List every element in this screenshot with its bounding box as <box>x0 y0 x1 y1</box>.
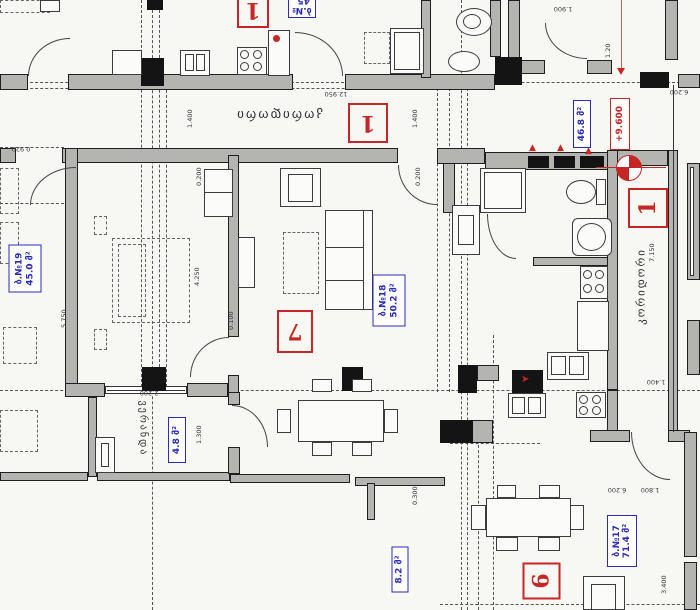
stove-burner <box>595 270 604 279</box>
chair <box>352 442 372 456</box>
wardrobe <box>204 169 233 217</box>
level-datum-icon <box>616 155 642 181</box>
stove-burner <box>240 62 249 71</box>
apartment-number: ბ.№17 <box>612 525 622 557</box>
chair <box>496 537 518 551</box>
dimension: 0.100 <box>227 311 235 330</box>
position-marker-corridor: 1 <box>348 103 388 143</box>
door-arc <box>545 23 587 59</box>
dimension: 12.950 <box>320 90 352 98</box>
elevation-value: +9.600 <box>615 106 625 142</box>
wall <box>228 392 240 405</box>
coffee-table <box>283 232 319 294</box>
sofa-cushion-line <box>325 247 363 248</box>
radiator-core <box>101 443 109 467</box>
chair <box>352 379 372 392</box>
dimension: 7.150 <box>648 243 656 262</box>
wall <box>65 383 105 397</box>
dimension: 5.750 <box>60 309 68 328</box>
veranda-area-label: 4.8 მ² <box>168 417 186 463</box>
room-label-corridor-right: კორიდორი <box>635 242 648 332</box>
dimension: 6.200 <box>604 486 630 494</box>
vent-shaft <box>554 156 575 168</box>
position-marker-stair: 1 <box>628 188 668 228</box>
axis-line <box>461 0 462 610</box>
dimension: 0.200 <box>414 167 422 186</box>
balcony-couch <box>0 410 38 452</box>
column <box>141 58 164 86</box>
dimension: 1.900 <box>550 5 576 13</box>
wall <box>68 74 293 90</box>
level-datum-line <box>596 167 666 168</box>
kitchen-sink-basin <box>551 356 566 375</box>
stove-burner <box>583 270 592 279</box>
axis-line <box>440 604 700 605</box>
wardrobe <box>238 237 255 288</box>
table <box>3 327 37 364</box>
axis-line <box>449 88 450 392</box>
sofa <box>0 168 19 214</box>
door-arc <box>487 214 516 259</box>
dimension: 1.800 <box>638 486 662 494</box>
vent-shaft <box>528 156 549 168</box>
column <box>458 365 477 393</box>
wall <box>607 150 618 390</box>
axis-line <box>450 443 540 444</box>
armchair-seat <box>288 174 313 202</box>
chair <box>384 409 398 433</box>
wall <box>665 0 678 60</box>
apartment-label-17: ბ.№17 71.4 მ² <box>607 515 637 567</box>
stove-burner <box>240 50 249 59</box>
kitchen-sink-basin <box>185 54 194 71</box>
vent-arrow-icon: ▲ <box>557 143 564 153</box>
sofa-cushion-line <box>325 280 363 281</box>
boiler-dot <box>273 35 280 42</box>
shower-tray <box>390 28 424 74</box>
position-number: 1 <box>245 0 260 23</box>
column <box>147 0 163 10</box>
dimension: 1.400 <box>411 109 419 128</box>
column <box>142 367 166 391</box>
wall <box>590 430 630 442</box>
door-arc <box>28 38 70 76</box>
wall <box>187 383 228 397</box>
floor-plan: ➤ კორიდორი 1 1 ბ.№ 45. 46.8 მ² +9.600 ▲ … <box>0 0 700 610</box>
toilet <box>566 180 596 204</box>
sofa-back-line <box>363 210 364 310</box>
nightstand <box>94 216 107 235</box>
position-number: 1 <box>635 200 661 215</box>
wall <box>345 74 495 90</box>
bed-mattress <box>118 244 146 317</box>
dimension: 1.300 <box>195 425 203 444</box>
dimension: 3.400 <box>660 575 668 594</box>
stove-burner <box>595 284 604 293</box>
dimension: 0.300 <box>411 486 419 505</box>
balcony-area-label: 8.2 მ² <box>392 547 409 593</box>
balcony-rail <box>0 472 88 481</box>
hall-area-label: 46.8 მ² <box>573 100 591 148</box>
stove-burner <box>583 284 592 293</box>
bathtub-basin <box>577 223 606 251</box>
apartment-label-18: ბ.№18 50.2 მ² <box>373 275 406 327</box>
sink <box>448 51 480 72</box>
wall <box>228 447 240 474</box>
wall <box>472 420 493 443</box>
duct-arrow-icon: ➤ <box>521 374 529 385</box>
wall <box>587 60 612 74</box>
desk-inner <box>591 584 616 610</box>
kitchen-counter <box>112 50 142 75</box>
door-arc <box>190 337 229 377</box>
apartment-number: ბ.№ <box>292 5 311 15</box>
chair <box>312 442 332 456</box>
door-arc <box>232 405 268 447</box>
chair <box>539 485 560 498</box>
door-arc <box>30 167 76 205</box>
wall <box>684 562 697 610</box>
stove-burner <box>579 406 588 415</box>
wall <box>678 74 700 88</box>
chair <box>570 505 584 530</box>
vent-arrow-icon: ▲ <box>585 146 592 156</box>
position-number: 7 <box>287 319 302 345</box>
apartment-label-19: ბ.№19 45.0 მ² <box>9 245 42 293</box>
dimension: 0.200 <box>195 167 203 186</box>
dimension: 4.250 <box>193 267 201 286</box>
boiler <box>364 32 390 64</box>
area-value: 46.8 მ² <box>577 107 587 141</box>
dimension: 1.400 <box>186 109 194 128</box>
position-marker-living: 7 <box>277 310 313 353</box>
position-marker-top: 1 <box>237 0 269 28</box>
dining-table <box>486 498 571 537</box>
shower-tray <box>480 168 526 213</box>
wall <box>684 432 697 557</box>
chair <box>471 505 486 530</box>
stair-direction-arrow-icon <box>617 68 625 75</box>
wall <box>508 0 520 60</box>
area-value: 4.8 მ² <box>172 426 182 454</box>
wall <box>437 148 485 164</box>
neighbor-window <box>687 320 700 375</box>
room-label-veranda: ვერანდა <box>138 399 149 459</box>
wall <box>490 0 501 57</box>
apartment-number: ბ.№19 <box>15 253 25 285</box>
kitchen-sink-basin <box>528 397 541 414</box>
dimension: 2.200 <box>136 389 162 397</box>
apartment-label-top: ბ.№ 45. <box>288 0 316 18</box>
dimension: 1.400 <box>643 378 669 386</box>
position-number: 1 <box>360 110 375 136</box>
dimension: 6.200 <box>666 88 692 96</box>
toilet-tank <box>596 179 606 205</box>
chair <box>538 537 560 551</box>
section-line <box>673 85 674 432</box>
wall <box>477 365 499 381</box>
axis-line <box>437 88 438 392</box>
apartment-area: 50.2 მ² <box>389 283 399 317</box>
stove-burner <box>592 406 601 415</box>
balcony-rail <box>97 472 230 481</box>
position-marker-apt17: 6 <box>523 563 561 600</box>
apartment-area: 45. <box>294 0 310 5</box>
apartment-area: 71.4 მ² <box>622 524 632 558</box>
column <box>440 420 473 443</box>
wardrobe-line <box>204 192 233 193</box>
chair <box>277 409 291 433</box>
kitchen-sink-basin <box>569 356 584 375</box>
room-label-corridor-top: კორიდორი <box>213 107 323 122</box>
axis-line <box>467 88 468 610</box>
elevation-marker: +9.600 <box>610 98 630 150</box>
stove-burner <box>253 50 262 59</box>
apartment-area: 45.0 მ² <box>25 251 35 285</box>
position-number: 6 <box>529 573 555 588</box>
kitchen-sink-basin <box>512 397 525 414</box>
toilet-bowl <box>463 14 481 29</box>
apartment-number: ბ.№18 <box>379 285 389 317</box>
dimension: 0.920 <box>8 145 34 153</box>
wall <box>0 74 28 90</box>
dining-table <box>298 400 384 442</box>
stove-burner <box>253 62 262 71</box>
washing-machine-drum <box>458 215 474 245</box>
area-value: 8.2 მ² <box>395 555 405 583</box>
vent-arrow-icon: ▲ <box>529 143 536 153</box>
sofa <box>325 210 373 310</box>
chair <box>312 379 332 392</box>
stove-burner <box>579 395 588 404</box>
kitchen-counter <box>577 301 609 351</box>
door-arc-entrance <box>631 432 670 480</box>
wall <box>367 483 375 520</box>
wall <box>533 257 617 266</box>
balcony-rail <box>230 474 350 483</box>
cabinet <box>40 0 60 12</box>
door-arc <box>295 32 343 76</box>
neighbor-window-glass <box>690 167 694 276</box>
nightstand <box>94 329 107 350</box>
dimension: 1.20 <box>604 44 612 58</box>
kitchen-sink-basin <box>196 54 205 71</box>
stair-direction-line <box>621 0 622 70</box>
column <box>495 57 522 85</box>
chair <box>497 485 516 498</box>
column <box>640 72 669 88</box>
stove-burner <box>592 395 601 404</box>
